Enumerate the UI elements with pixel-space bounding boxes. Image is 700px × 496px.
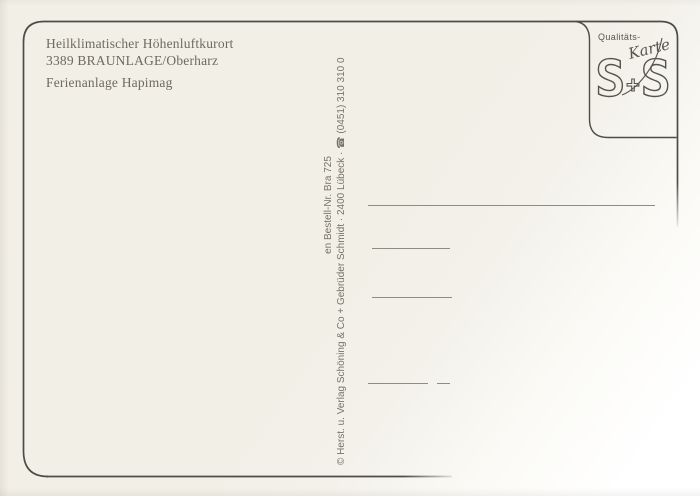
quality-mark: Qualitäts- Karte S + S xyxy=(588,21,678,138)
order-number-line: en Bestell-Nr. Bra 725 xyxy=(322,0,335,425)
monogram-letter-left: S xyxy=(595,54,625,104)
imprint-line: © Herst. u. Verlag Schöning & Co + Gebrü… xyxy=(335,25,348,465)
address-rule-line xyxy=(368,383,428,384)
address-rule-line xyxy=(368,205,655,206)
address-rule-line xyxy=(372,297,452,298)
caption-facility: Ferienanlage Hapimag xyxy=(46,74,233,91)
address-rule-line xyxy=(372,248,450,249)
address-rule-dash xyxy=(437,383,450,384)
caption-block: Heilklimatischer Höhenluftkurort 3389 BR… xyxy=(46,35,233,91)
caption-resort-type: Heilklimatischer Höhenluftkurort xyxy=(46,35,233,52)
monogram-letter-right: S xyxy=(641,54,671,104)
monogram-plus: + xyxy=(626,75,639,97)
quality-mark-label: Qualitäts- xyxy=(598,32,641,42)
publisher-monogram-icon: S + S xyxy=(591,51,675,107)
publisher-imprint: en Bestell-Nr. Bra 725 © Herst. u. Verla… xyxy=(322,25,348,465)
caption-town: 3389 BRAUNLAGE/Oberharz xyxy=(46,52,233,69)
